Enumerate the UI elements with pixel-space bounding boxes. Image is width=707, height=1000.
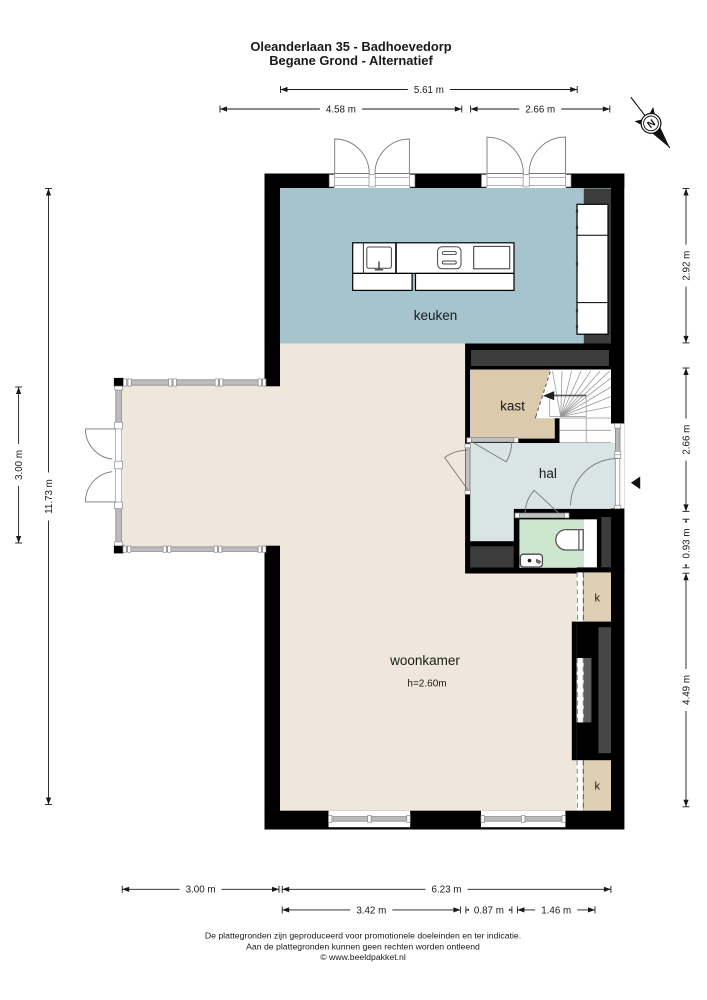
svg-text:3.42 m: 3.42 m — [356, 905, 386, 916]
svg-text:woonkamer: woonkamer — [389, 653, 460, 668]
svg-text:De plattegronden zijn geproduc: De plattegronden zijn geproduceerd voor … — [205, 930, 521, 940]
svg-text:Aan de plattegronden kunnen ge: Aan de plattegronden kunnen geen rechten… — [246, 941, 480, 951]
svg-text:4.49 m: 4.49 m — [681, 675, 692, 705]
svg-text:11.73 m: 11.73 m — [44, 479, 55, 514]
svg-text:0.87 m: 0.87 m — [474, 905, 504, 916]
svg-text:3.00 m: 3.00 m — [14, 450, 25, 480]
svg-text:5.61 m: 5.61 m — [414, 85, 444, 96]
svg-text:3.00 m: 3.00 m — [186, 885, 216, 896]
svg-text:2.66 m: 2.66 m — [525, 104, 555, 115]
svg-text:Begane Grond - Alternatief: Begane Grond - Alternatief — [269, 53, 433, 68]
svg-text:kast: kast — [500, 399, 525, 414]
svg-text:6.23 m: 6.23 m — [432, 885, 462, 896]
svg-text:4.58 m: 4.58 m — [326, 104, 356, 115]
svg-text:k: k — [595, 593, 601, 605]
svg-text:h=2.60m: h=2.60m — [407, 679, 446, 690]
svg-text:© www.beeldpakket.nl: © www.beeldpakket.nl — [320, 952, 406, 962]
svg-text:2.66 m: 2.66 m — [681, 425, 692, 455]
svg-text:1.46 m: 1.46 m — [541, 905, 571, 916]
svg-text:keuken: keuken — [414, 308, 458, 323]
svg-text:2.92 m: 2.92 m — [681, 251, 692, 281]
svg-text:0.93 m: 0.93 m — [681, 529, 692, 559]
svg-text:k: k — [595, 781, 601, 793]
svg-text:hal: hal — [539, 466, 557, 481]
